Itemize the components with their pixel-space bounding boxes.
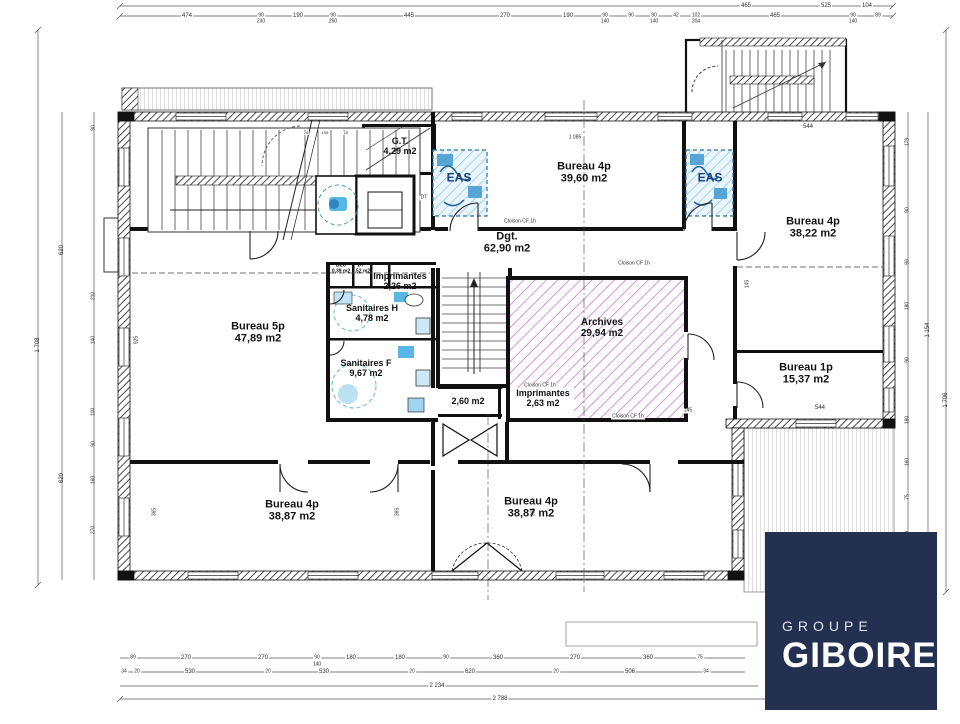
entrance-doors bbox=[443, 424, 522, 571]
exterior-stair bbox=[686, 38, 846, 120]
central-staircase bbox=[442, 272, 506, 374]
eas-zone-right bbox=[686, 150, 733, 216]
exterior-steps bbox=[566, 622, 757, 646]
archives-hatch bbox=[510, 280, 684, 418]
facade-bump bbox=[104, 218, 120, 272]
pmr-wc bbox=[316, 176, 358, 234]
logo-groupe-text: GROUPE bbox=[782, 618, 937, 634]
eas-zone-left bbox=[433, 150, 487, 216]
logo-giboire-text: GIBOIRE bbox=[782, 636, 937, 676]
company-logo: GROUPE GIBOIRE bbox=[765, 532, 937, 710]
entrance-canopy bbox=[122, 88, 432, 110]
elevator bbox=[356, 176, 414, 234]
floor-plan-page: Bureau 5p47,89 m2Bureau 4p39,60 m2Bureau… bbox=[0, 0, 960, 724]
sanitary-fixtures bbox=[332, 292, 430, 412]
